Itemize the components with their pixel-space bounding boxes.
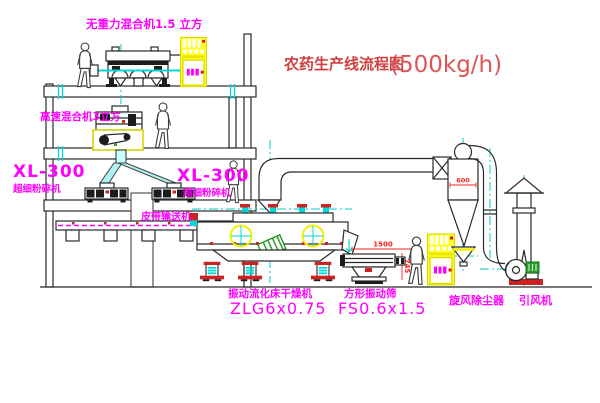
label-crusher-right-name: 超细粉碎机 [182, 187, 231, 199]
gravity-mixer-drawing [90, 47, 194, 87]
exhaust-duct-drawing [258, 157, 451, 214]
person-icon [156, 103, 171, 149]
label-gravity-mixer: 无重力混合机1.5 立方 [85, 17, 202, 31]
induced-fan-drawing [506, 260, 544, 286]
diagram-title-capacity: (500kg/h) [390, 52, 502, 78]
diagram-svg: 农药生产线流程图 (500kg/h) 无重力混合机1.5 立方 高速混合机3立方… [0, 0, 600, 403]
label-belt-conveyor: 皮带输送机 [140, 210, 191, 223]
label-crusher-left-model: XL-300 [13, 162, 85, 182]
flow-diagram-canvas: 农药生产线流程图 (500kg/h) 无重力混合机1.5 立方 高速混合机3立方… [0, 0, 600, 403]
label-screen-model: FS0.6x1.5 [338, 299, 426, 318]
control-cabinet-icon [428, 234, 455, 285]
label-induced-fan: 引风机 [519, 293, 552, 307]
bucket-elevator-cabinet-icon [180, 37, 206, 86]
crusher-left-icon [85, 183, 128, 203]
label-crusher-left-name: 超细粉碎机 [12, 183, 61, 195]
dim-cyclone-width: 600 [456, 177, 470, 185]
diagram-title: 农药生产线流程图 [283, 55, 404, 73]
label-high-speed-mixer: 高速混合机3立方 [40, 110, 121, 123]
dim-screen-length: 1500 [373, 241, 393, 249]
person-icon [78, 43, 93, 88]
label-crusher-right-model: XL-300 [177, 166, 249, 186]
dim-screen-height: 745 [403, 259, 411, 274]
label-dryer-model: ZLG6x0.75 [230, 299, 327, 318]
fluid-bed-dryer-drawing [189, 204, 358, 281]
cyclone-drawing [448, 144, 478, 267]
label-cyclone: 旋风除尘器 [448, 293, 505, 307]
